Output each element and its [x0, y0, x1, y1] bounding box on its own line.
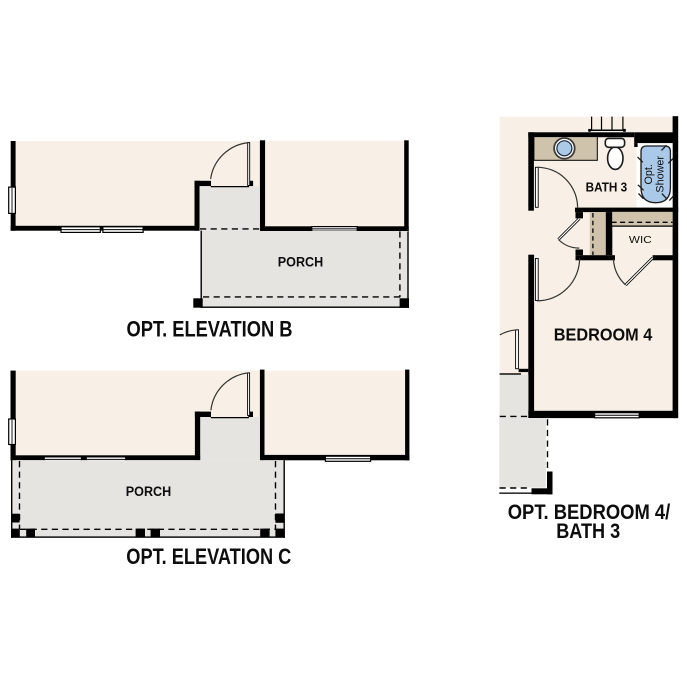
- svg-text:WIC: WIC: [629, 234, 652, 246]
- svg-text:Opt.: Opt.: [643, 164, 655, 184]
- svg-text:PORCH: PORCH: [126, 484, 171, 499]
- svg-text:BEDROOM 4: BEDROOM 4: [554, 325, 653, 345]
- svg-text:Shower: Shower: [655, 156, 667, 193]
- svg-text:BATH 3: BATH 3: [556, 520, 620, 543]
- svg-text:PORCH: PORCH: [278, 255, 323, 270]
- svg-text:OPT. ELEVATION C: OPT. ELEVATION C: [126, 544, 291, 569]
- svg-text:OPT. ELEVATION B: OPT. ELEVATION B: [127, 317, 293, 342]
- svg-text:BATH 3: BATH 3: [586, 180, 628, 195]
